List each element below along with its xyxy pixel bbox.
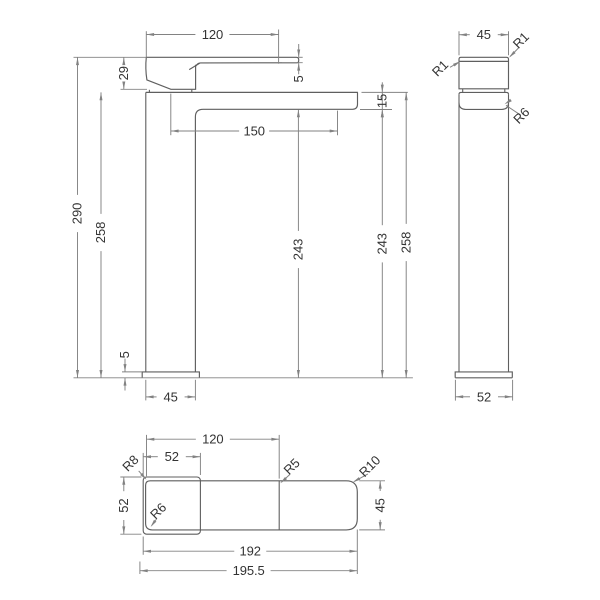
- svg-text:150: 150: [243, 124, 264, 139]
- svg-text:45: 45: [372, 498, 387, 512]
- svg-text:15: 15: [375, 94, 390, 108]
- svg-text:52: 52: [116, 498, 131, 512]
- svg-text:243: 243: [291, 239, 306, 260]
- svg-text:52: 52: [477, 389, 491, 404]
- svg-text:258: 258: [398, 232, 413, 253]
- svg-text:243: 243: [375, 233, 390, 254]
- svg-text:195.5: 195.5: [233, 563, 265, 578]
- svg-text:120: 120: [202, 27, 223, 42]
- svg-text:5: 5: [291, 75, 306, 82]
- svg-text:52: 52: [165, 449, 179, 464]
- svg-text:290: 290: [70, 203, 85, 224]
- svg-text:258: 258: [93, 222, 108, 243]
- svg-text:45: 45: [163, 389, 177, 404]
- svg-text:120: 120: [202, 432, 223, 447]
- svg-text:29: 29: [116, 66, 131, 80]
- svg-text:192: 192: [240, 544, 261, 559]
- svg-text:5: 5: [117, 351, 132, 358]
- svg-text:45: 45: [477, 27, 491, 42]
